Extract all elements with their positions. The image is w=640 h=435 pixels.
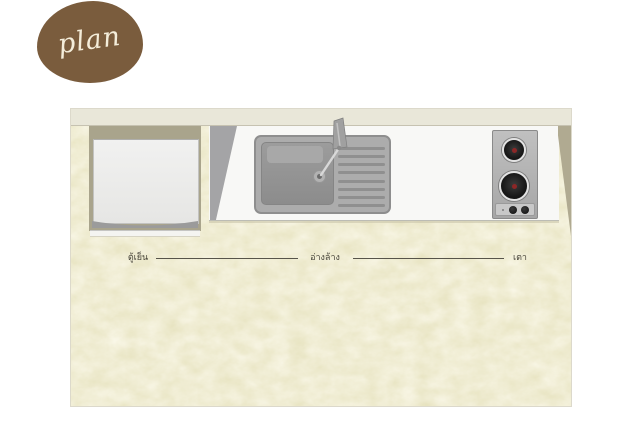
faucet-joint	[337, 146, 341, 150]
refrigerator-door-shadow-path	[92, 221, 198, 228]
drainboard-ridge	[338, 204, 385, 207]
burner-small-icon	[502, 138, 526, 162]
kitchen-plan-page: plan	[0, 0, 640, 435]
stove-knob	[509, 206, 517, 214]
drainboard-ridge	[338, 196, 385, 199]
label-sink: อ่างล้าง	[299, 252, 351, 264]
leader-line	[353, 258, 504, 259]
refrigerator-top-icon	[93, 139, 199, 224]
floor-plan: ตู้เย็น อ่างล้าง เตา	[70, 108, 572, 407]
plan-badge: plan	[37, 1, 143, 83]
plan-badge-label: plan	[56, 20, 123, 60]
burner-center-dot	[512, 148, 517, 153]
drainboard-ridge	[338, 180, 385, 183]
pilot-light-dot	[502, 209, 504, 211]
drainboard-ridge	[338, 188, 385, 191]
refrigerator-base	[90, 230, 200, 237]
stove-top-icon	[492, 130, 538, 219]
stove-control-panel	[495, 203, 535, 216]
faucet-spout	[321, 148, 339, 175]
label-refrigerator: ตู้เย็น	[118, 252, 158, 264]
burner-large-icon	[499, 171, 529, 201]
faucet-icon	[313, 115, 353, 179]
stove-knob	[521, 206, 529, 214]
burner-center-dot	[512, 184, 517, 189]
leader-line	[156, 258, 298, 259]
label-stove: เตา	[507, 252, 533, 264]
